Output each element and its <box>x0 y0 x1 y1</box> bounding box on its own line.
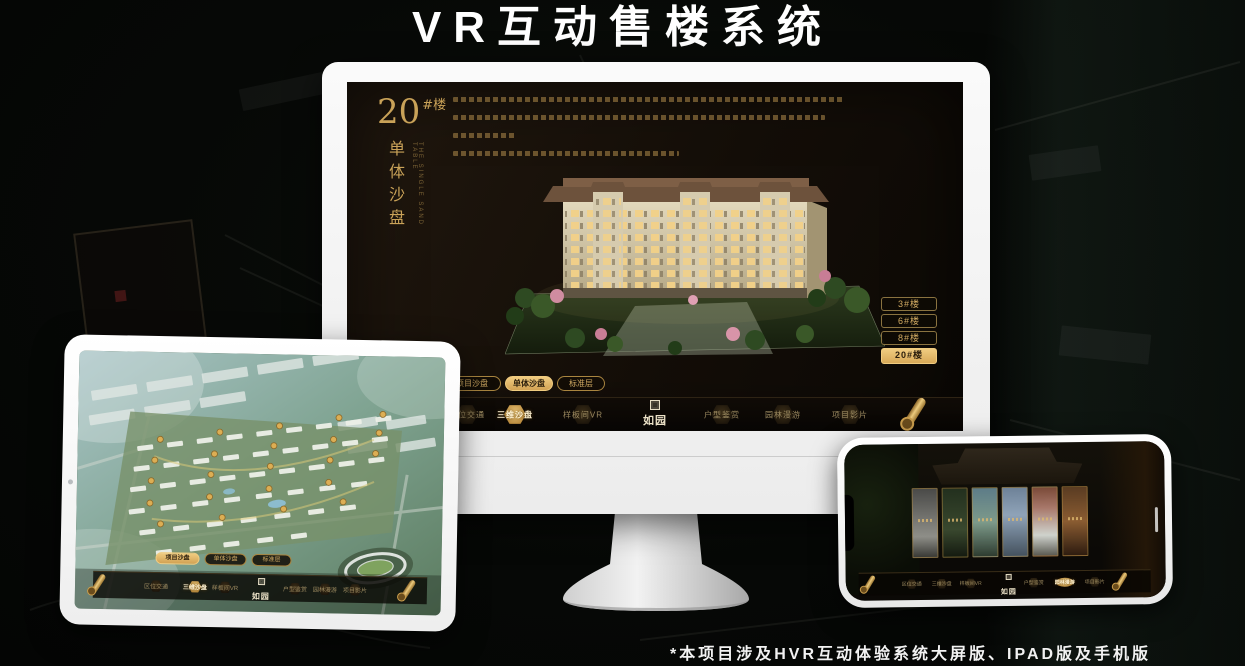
tablet-frame: 项目沙盘 单体沙盘 标准层 区位交通 三维沙盘 <box>59 334 460 632</box>
nav-item-label: 区位交通 <box>141 581 171 591</box>
promo-canvas: VR互动售楼系统 20#楼 单体沙盘 THE SINGLE SAND TABLE <box>0 0 1245 666</box>
nav-item-label: 样板间VR <box>957 580 985 587</box>
nav-item-label: 户型鉴赏 <box>280 584 310 594</box>
home-indicator-icon <box>1155 507 1158 532</box>
scroll-icon[interactable] <box>862 575 876 593</box>
floor-button-20[interactable]: 20#楼 <box>881 348 937 364</box>
nav-item-label: 项目影片 <box>1081 578 1109 585</box>
building-subtitle-en: THE SINGLE SAND TABLE <box>411 142 423 242</box>
floor-button-3[interactable]: 3#楼 <box>881 297 937 311</box>
brand-logo-text: 如园 <box>1001 587 1017 596</box>
scene-panel-building[interactable] <box>1002 487 1029 557</box>
nav-item-label: 样板间VR <box>557 409 609 420</box>
tablet-screen: 项目沙盘 单体沙盘 标准层 区位交通 三维沙盘 <box>75 351 446 616</box>
scene-panel-garden[interactable] <box>942 487 969 557</box>
nav-item-label: 三维沙盘 <box>489 409 541 420</box>
nav-item-label: 园林漫游 <box>310 584 340 594</box>
nav-item-garden-tour[interactable]: 园林漫游 <box>310 576 340 603</box>
seal-icon <box>1006 574 1012 580</box>
camera-icon <box>68 479 73 484</box>
scene-panel-courtyard[interactable] <box>912 488 939 558</box>
nav-item-label: 区位交通 <box>898 580 926 587</box>
building-heading: 20#楼 <box>377 94 446 130</box>
nav-item-label: 户型鉴赏 <box>696 409 748 420</box>
scene-panel-landscape[interactable] <box>972 487 999 557</box>
nav-item-project-video[interactable]: 项目影片 <box>824 398 876 431</box>
nav-item-showroom-vr[interactable]: 样板间VR <box>210 574 240 601</box>
nav-item-label: 户型鉴赏 <box>1020 579 1048 586</box>
nav-item-location-traffic[interactable]: 区位交通 <box>898 573 926 595</box>
scroll-icon[interactable] <box>399 579 416 601</box>
nav-item-label: 项目影片 <box>824 409 876 420</box>
tab-single-sandtable[interactable]: 单体沙盘 <box>204 553 246 566</box>
scroll-icon[interactable] <box>1114 572 1128 590</box>
brand-logo-text: 如园 <box>252 591 270 601</box>
nav-item-floorplans[interactable]: 户型鉴赏 <box>696 398 748 431</box>
brand-logo: 如园 <box>635 400 675 429</box>
scroll-icon[interactable] <box>902 396 928 430</box>
description-text-line <box>453 115 825 120</box>
page-title: VR互动售楼系统 <box>0 2 1245 54</box>
phone-screen: 区位交通 三维沙盘 样板间VR 如园 <box>844 441 1166 601</box>
nav-item-showroom-vr[interactable]: 样板间VR <box>557 398 609 431</box>
nav-item-project-video[interactable]: 项目影片 <box>340 577 370 604</box>
nav-item-label: 园林漫游 <box>1051 579 1079 586</box>
building-number-suffix: #楼 <box>422 98 446 113</box>
brand-logo-text: 如园 <box>643 414 667 427</box>
monitor-stand <box>535 512 777 614</box>
floor-button-8[interactable]: 8#楼 <box>881 331 937 345</box>
pavilion-silhouette <box>932 447 1082 485</box>
tablet-device: 项目沙盘 单体沙盘 标准层 区位交通 三维沙盘 <box>59 334 460 632</box>
building-subtitle: 单体沙盘 <box>383 140 407 260</box>
nav-item-label: 园林漫游 <box>757 409 809 420</box>
nav-item-garden-tour[interactable]: 园林漫游 <box>1051 571 1079 593</box>
description-text-line <box>453 133 517 138</box>
tab-standard-floor[interactable]: 标准层 <box>557 376 605 391</box>
phone-frame: 区位交通 三维沙盘 样板间VR 如园 <box>837 434 1173 608</box>
building-3d-model[interactable] <box>505 148 885 374</box>
phone-device: 区位交通 三维沙盘 样板间VR 如园 <box>837 434 1173 608</box>
nav-item-floorplans[interactable]: 户型鉴赏 <box>280 575 310 602</box>
brand-logo: 如园 <box>247 578 275 605</box>
nav-item-label: 项目影片 <box>340 585 370 595</box>
nav-item-3d-sandtable[interactable]: 三维沙盘 <box>928 573 956 595</box>
nav-item-label: 三维沙盘 <box>928 580 956 587</box>
nav-item-project-video[interactable]: 项目影片 <box>1081 571 1109 593</box>
seal-icon <box>650 400 660 410</box>
scene-panel-autumn[interactable] <box>1032 486 1059 556</box>
scene-panel-interior[interactable] <box>1062 486 1089 556</box>
brand-logo: 如园 <box>997 574 1021 599</box>
building-number: 20 <box>377 92 420 132</box>
tab-project-sandtable[interactable]: 项目沙盘 <box>155 552 199 565</box>
phone-bottom-nav: 区位交通 三维沙盘 样板间VR 如园 <box>859 569 1151 596</box>
nav-item-label: 样板间VR <box>210 583 240 593</box>
nav-item-showroom-vr[interactable]: 样板间VR <box>957 572 985 594</box>
nav-item-location-traffic[interactable]: 区位交通 <box>141 573 171 600</box>
nav-item-garden-tour[interactable]: 园林漫游 <box>757 398 809 431</box>
nav-item-label: 三维沙盘 <box>180 582 210 592</box>
nav-item-3d-sandtable[interactable]: 三维沙盘 <box>489 398 541 431</box>
nav-item-floorplans[interactable]: 户型鉴赏 <box>1020 571 1048 593</box>
description-text-line <box>453 97 845 102</box>
seal-icon <box>258 578 265 585</box>
floor-button-6[interactable]: 6#楼 <box>881 314 937 328</box>
tab-standard-floor[interactable]: 标准层 <box>251 554 291 567</box>
nav-item-3d-sandtable[interactable]: 三维沙盘 <box>180 573 210 600</box>
tab-single-sandtable[interactable]: 单体沙盘 <box>505 376 553 391</box>
footnote-text: *本项目涉及HVR互动体验系统大屏版、IPAD版及手机版 <box>670 640 1151 664</box>
notch <box>845 495 855 551</box>
